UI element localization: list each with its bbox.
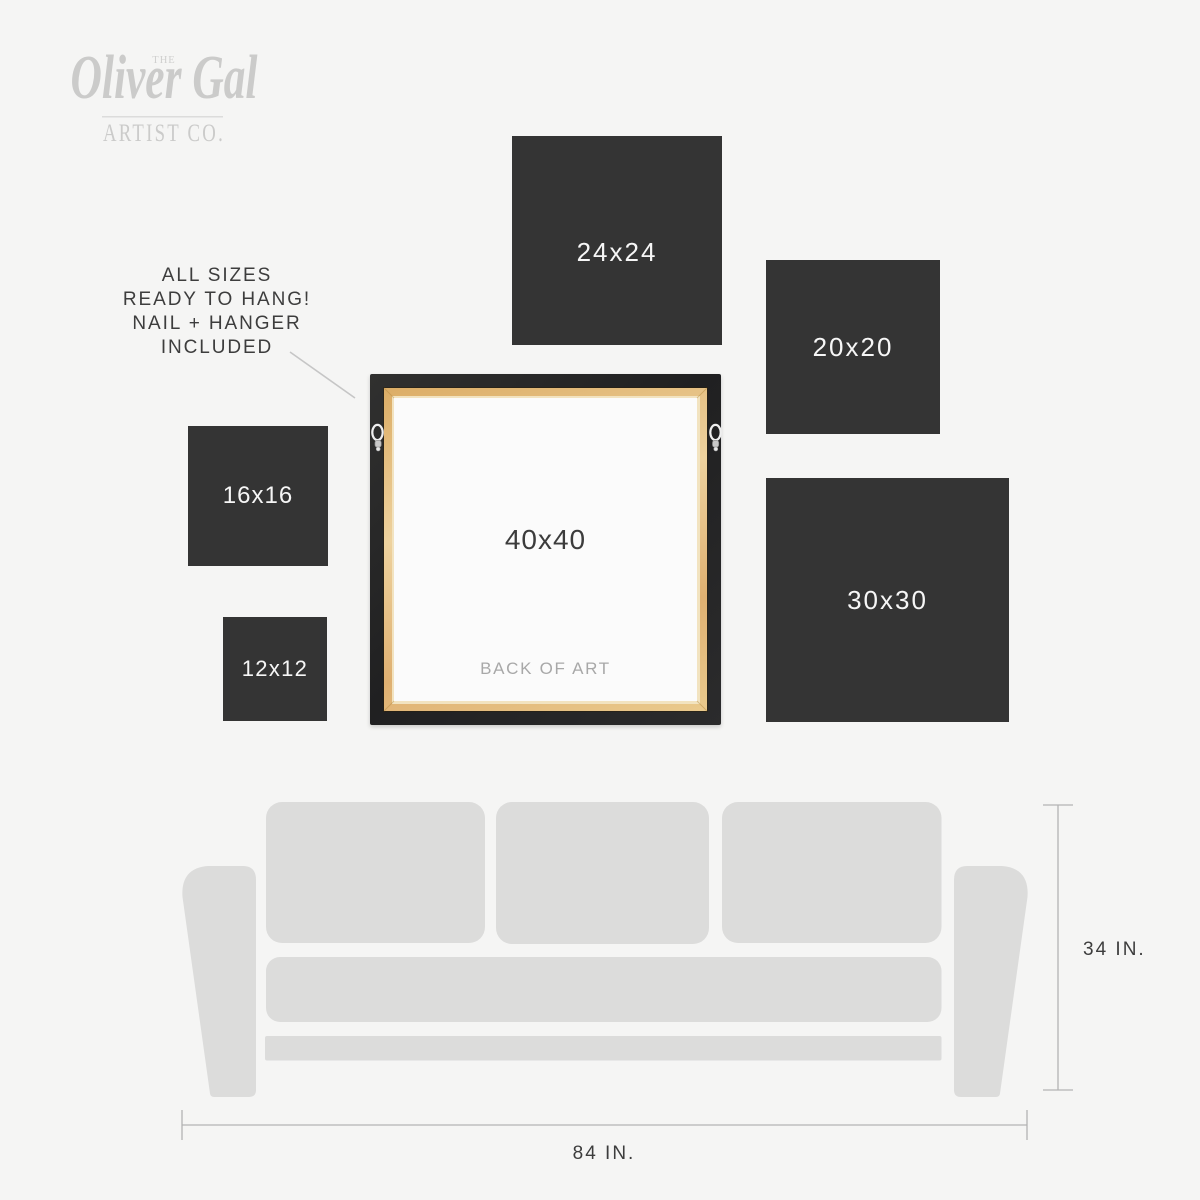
svg-text:ARTIST CO.: ARTIST CO. [103,120,225,147]
svg-text:Oliver Gal: Oliver Gal [71,44,259,112]
